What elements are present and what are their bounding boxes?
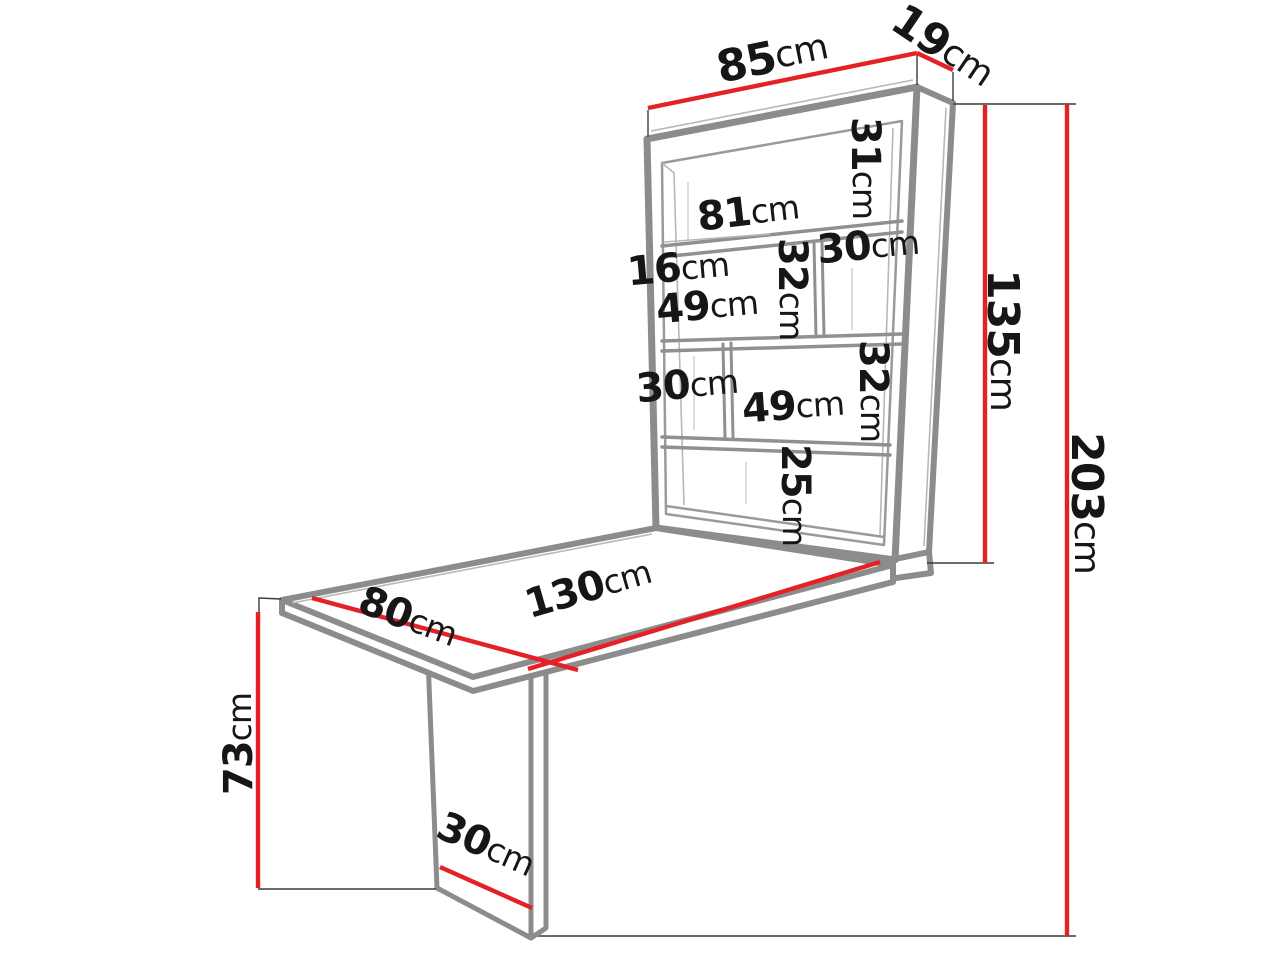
- tick-desk-corner: [259, 598, 281, 612]
- label-row4-height: 25cm: [772, 444, 818, 546]
- diagram-canvas: 85cm 19cm 31cm 81cm 30cm 16cm 32cm 49cm …: [0, 0, 1280, 960]
- furniture-diagram: 85cm 19cm 31cm 81cm 30cm 16cm 32cm 49cm …: [0, 0, 1280, 960]
- leg-front-face: [428, 658, 531, 938]
- label-total-height: 203cm: [1062, 432, 1113, 574]
- label-row1-height: 31cm: [842, 117, 888, 219]
- label-cabinet-depth: 19cm: [882, 0, 1003, 98]
- label-row2-height: 32cm: [769, 238, 815, 340]
- label-desk-height: 73cm: [216, 693, 262, 795]
- label-cabinet-width: 85cm: [712, 21, 832, 93]
- desk-leg: [428, 658, 546, 938]
- label-cabinet-height: 135cm: [978, 269, 1029, 411]
- label-row3-height: 32cm: [850, 340, 896, 442]
